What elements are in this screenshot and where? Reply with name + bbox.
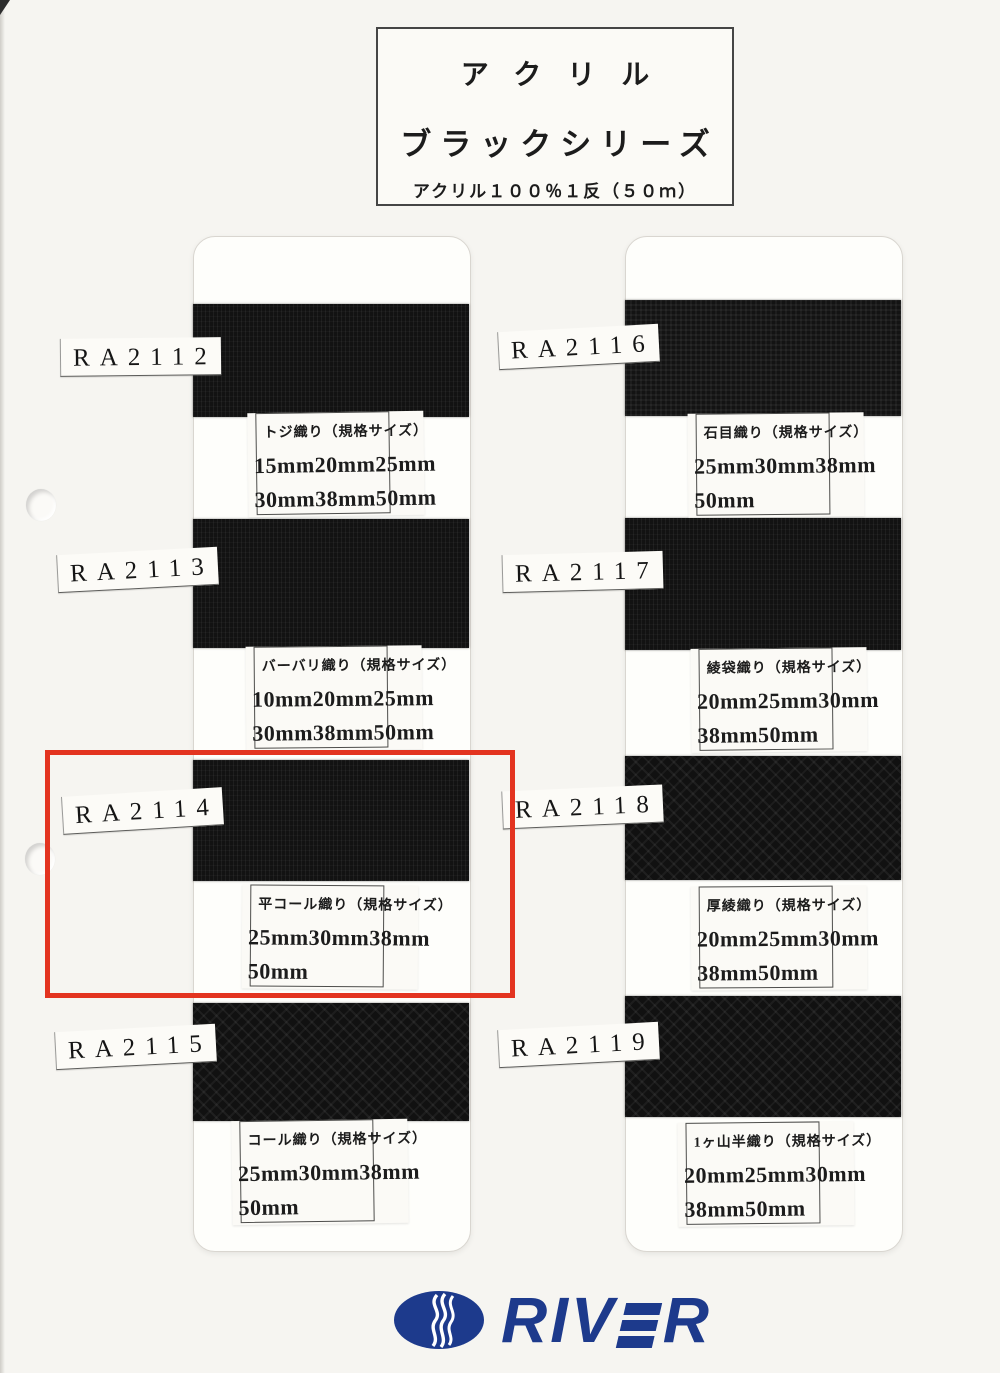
spec-sizes-line1: 20mm25mm30mm xyxy=(697,687,879,715)
code-label-ra2118: RA2118 xyxy=(501,785,663,830)
series-title-line2: ブラックシリーズ xyxy=(378,119,732,164)
spec-weave-name: コール織り（規格サイズ） xyxy=(247,1128,427,1151)
spec-sizes-line2: 38mm50mm xyxy=(697,960,818,987)
code-text: RA2113 xyxy=(69,553,214,587)
tape-sample-ra2117 xyxy=(625,518,901,650)
code-text: RA2112 xyxy=(73,343,217,372)
highlight-rectangle-ra2114 xyxy=(45,750,515,998)
logo-letters-riv: RIV xyxy=(501,1291,617,1350)
tape-sample-ra2119 xyxy=(625,996,901,1117)
spec-label-ra2119: 1ヶ山半織り（規格サイズ） 20mm25mm30mm 38mm50mm xyxy=(677,1121,854,1227)
river-wave-oval-icon xyxy=(393,1290,485,1350)
punch-hole-top xyxy=(26,489,56,521)
spec-weave-name: 1ヶ山半織り（規格サイズ） xyxy=(694,1130,882,1152)
spec-weave-name: 厚綾織り（規格サイズ） xyxy=(707,894,872,915)
code-label-ra2117: RA2117 xyxy=(502,551,664,593)
spec-weave-name: バーバリ織り（規格サイズ） xyxy=(262,654,457,676)
series-material-note: アクリル１００％１反（５０ｍ） xyxy=(378,177,732,202)
spec-label-ra2117: 綾袋織り（規格サイズ） 20mm25mm30mm 38mm50mm xyxy=(690,647,867,753)
spec-label-ra2116: 石目織り（規格サイズ） 25mm30mm38mm 50mm xyxy=(688,412,865,518)
code-text: RA2117 xyxy=(515,557,659,588)
spec-sizes-line1: 25mm30mm38mm xyxy=(238,1159,420,1188)
spec-sizes-line2: 38mm50mm xyxy=(697,722,819,749)
code-text: RA2116 xyxy=(510,330,655,364)
spec-sizes-line1: 15mm20mm25mm xyxy=(254,451,436,480)
spec-sizes-line2: 50mm xyxy=(694,487,755,514)
series-title-line1: アクリル xyxy=(378,53,732,93)
spec-sizes-line1: 10mm20mm25mm xyxy=(252,685,434,713)
spec-weave-name: 綾袋織り（規格サイズ） xyxy=(707,656,872,678)
catalog-page: アクリル ブラックシリーズ アクリル１００％１反（５０ｍ） RA2112 RA2… xyxy=(0,0,1000,1373)
spec-sizes-line2: 50mm xyxy=(238,1194,299,1221)
spec-sizes-line1: 25mm30mm38mm xyxy=(694,452,876,480)
scan-edge-shading xyxy=(0,0,5,1373)
spec-label-ra2115: コール織り（規格サイズ） 25mm30mm38mm 50mm xyxy=(231,1119,408,1225)
spec-sizes-line2: 38mm50mm xyxy=(684,1196,806,1223)
spec-weave-name: トジ織り（規格サイズ） xyxy=(263,420,428,442)
tape-sample-ra2112 xyxy=(193,304,469,417)
tape-sample-ra2115 xyxy=(193,1003,469,1121)
spec-sizes-line1: 20mm25mm30mm xyxy=(684,1161,866,1189)
code-text: RA2119 xyxy=(510,1028,655,1062)
tape-sample-ra2118 xyxy=(625,756,901,880)
spec-label-ra2113: バーバリ織り（規格サイズ） 10mm20mm25mm 30mm38mm50mm xyxy=(246,645,423,751)
river-logo-text: RIV R xyxy=(501,1291,712,1350)
code-text: RA2115 xyxy=(67,1030,212,1064)
code-label-ra2112: RA2112 xyxy=(60,337,221,377)
tape-sample-ra2113 xyxy=(193,519,469,648)
logo-stylized-e-icon xyxy=(615,1303,661,1348)
code-text: RA2118 xyxy=(514,791,659,824)
series-title-box: アクリル ブラックシリーズ アクリル１００％１反（５０ｍ） xyxy=(376,27,734,206)
spec-label-ra2112: トジ織り（規格サイズ） 15mm20mm25mm 30mm38mm50mm xyxy=(247,411,424,517)
spec-weave-name: 石目織り（規格サイズ） xyxy=(704,421,869,442)
river-logo: RIV R xyxy=(393,1290,712,1350)
spec-sizes-line2: 30mm38mm50mm xyxy=(254,485,436,514)
scan-corner-artifact xyxy=(0,0,10,15)
tape-sample-ra2116 xyxy=(625,300,901,416)
logo-letter-r: R xyxy=(663,1291,712,1350)
spec-label-ra2118: 厚綾織り（規格サイズ） 20mm25mm30mm 38mm50mm xyxy=(691,885,868,990)
spec-sizes-line2: 30mm38mm50mm xyxy=(252,719,434,747)
spec-sizes-line1: 20mm25mm30mm xyxy=(697,925,879,952)
